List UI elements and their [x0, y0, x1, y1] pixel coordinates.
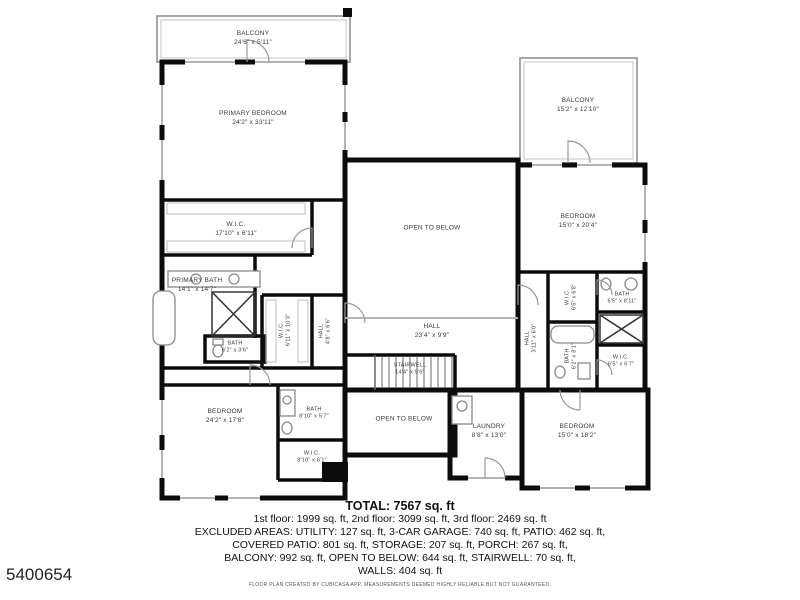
room-name: HALL — [415, 323, 449, 332]
walls-line: WALLS: 404 sq. ft — [0, 565, 800, 578]
room-dims: 23'4" x 9'9" — [415, 332, 449, 341]
room-name: LAUNDRY — [472, 423, 506, 432]
room-label-balcony-top: BALCONY24'6" x 5'11" — [234, 30, 272, 48]
room-name: W.I.C. — [608, 355, 634, 362]
room-label-laundry: LAUNDRY8'8" x 13'0" — [472, 423, 506, 441]
room-label-primary-bath: PRIMARY BATH14'1" x 14'7" — [172, 277, 222, 295]
excluded-line-1: EXCLUDED AREAS: UTILITY: 127 sq. ft, 3-C… — [0, 526, 800, 539]
room-label-wic-primary: W.I.C.17'10" x 6'11" — [215, 221, 257, 239]
room-dims: 6'5" x 6'8" — [572, 284, 579, 310]
room-dims: 4'8" x 6'6" — [326, 318, 333, 344]
room-label-stairwell: STAIRWELL14'4" x 5'6" — [394, 363, 426, 378]
total-area: TOTAL: 7567 sq. ft — [0, 499, 800, 513]
room-name: HALL — [319, 318, 326, 344]
room-label-bedroom-right-top: BEDROOM15'0" x 20'4" — [559, 213, 597, 231]
room-label-bedroom-bottom-right: BEDROOM15'0" x 18'2" — [558, 423, 596, 441]
room-name: BATH — [607, 292, 636, 299]
room-name: HALL — [525, 323, 532, 352]
room-dims: 3'11" x 6'0" — [532, 323, 539, 352]
room-label-hall-center: HALL23'4" x 9'9" — [415, 323, 449, 341]
room-name: BATH — [565, 343, 572, 369]
room-label-bath-small: BATH6'2" x 3'6" — [222, 341, 248, 356]
room-name: BEDROOM — [206, 408, 244, 417]
room-dims: 6'5" x 6'7" — [608, 362, 634, 369]
room-label-bedroom-bottom-left: BEDROOM24'2" x 17'8" — [206, 408, 244, 426]
room-dims: 15'0" x 20'4" — [559, 222, 597, 231]
room-label-open-below-top: OPEN TO BELOW — [404, 225, 461, 234]
room-label-wic-bottom-left: W.I.C.8'10" x 6'1" — [297, 451, 327, 466]
room-dims: 24'2" x 33'11" — [219, 119, 287, 128]
room-dims: 8'10" x 6'1" — [297, 458, 327, 465]
room-name: OPEN TO BELOW — [404, 225, 461, 234]
room-name: W.I.C. — [565, 284, 572, 310]
room-label-wic-right-bottom: W.I.C.6'5" x 6'7" — [608, 355, 634, 370]
room-dims: 6'2" x 8'1" — [572, 343, 579, 369]
room-name: W.I.C. — [297, 451, 327, 458]
room-label-balcony-right: BALCONY15'2" x 12'10" — [557, 97, 599, 115]
room-name: W.I.C. — [215, 221, 257, 230]
room-dims: 24'2" x 17'8" — [206, 417, 244, 426]
room-label-open-below-bottom: OPEN TO BELOW — [376, 416, 433, 425]
room-dims: 8'8" x 13'0" — [472, 432, 506, 441]
room-dims: 8'10" x 5'7" — [299, 414, 329, 421]
room-name: OPEN TO BELOW — [376, 416, 433, 425]
room-dims: 14'4" x 5'6" — [394, 370, 426, 377]
floors-line: 1st floor: 1999 sq. ft, 2nd floor: 3099 … — [0, 513, 800, 526]
room-name: BALCONY — [557, 97, 599, 106]
balcony-walls — [157, 16, 637, 163]
room-label-primary-bedroom: PRIMARY BEDROOM24'2" x 33'11" — [219, 110, 287, 128]
room-name: PRIMARY BEDROOM — [219, 110, 287, 119]
room-dims: 17'10" x 6'11" — [215, 230, 257, 239]
room-label-bath-bottom-left: BATH8'10" x 5'7" — [299, 407, 329, 422]
room-label-bath-right-bottom: BATH6'2" x 8'1" — [565, 343, 580, 369]
room-label-wic-left: W.I.C.6'11" x 10'3" — [279, 314, 294, 346]
room-dims: 14'1" x 14'7" — [172, 286, 222, 295]
room-label-hall-left: HALL4'8" x 6'6" — [319, 318, 334, 344]
room-name: BATH — [222, 341, 248, 348]
room-name: BEDROOM — [559, 213, 597, 222]
room-name: W.I.C. — [279, 314, 286, 346]
room-name: STAIRWELL — [394, 363, 426, 370]
room-dims: 24'6" x 5'11" — [234, 39, 272, 48]
room-dims: 15'2" x 12'10" — [557, 106, 599, 115]
excluded-line-2: COVERED PATIO: 801 sq. ft, STORAGE: 207 … — [0, 539, 800, 552]
room-dims: 6'2" x 3'6" — [222, 348, 248, 355]
room-dims: 6'5" x 8'11" — [607, 299, 636, 306]
room-label-wic-right-top: W.I.C.6'5" x 6'8" — [565, 284, 580, 310]
area-summary: TOTAL: 7567 sq. ft 1st floor: 1999 sq. f… — [0, 499, 800, 588]
room-label-hall-right: HALL3'11" x 6'0" — [525, 323, 540, 352]
floorplan-page: BALCONY24'6" x 5'11" PRIMARY BEDROOM24'2… — [0, 0, 800, 600]
plan-id-number: 5400654 — [6, 565, 72, 585]
room-name: BEDROOM — [558, 423, 596, 432]
disclaimer-text: FLOOR PLAN CREATED BY CUBICASA APP, MEAS… — [0, 582, 800, 588]
room-name: PRIMARY BATH — [172, 277, 222, 286]
room-name: BALCONY — [234, 30, 272, 39]
wall-stub-top — [343, 8, 352, 17]
room-dims: 6'11" x 10'3" — [286, 314, 293, 346]
room-label-bath-right-top: BATH6'5" x 8'11" — [607, 292, 636, 307]
room-dims: 15'0" x 18'2" — [558, 432, 596, 441]
excluded-line-3: BALCONY: 992 sq. ft, OPEN TO BELOW: 644 … — [0, 552, 800, 565]
room-name: BATH — [299, 407, 329, 414]
